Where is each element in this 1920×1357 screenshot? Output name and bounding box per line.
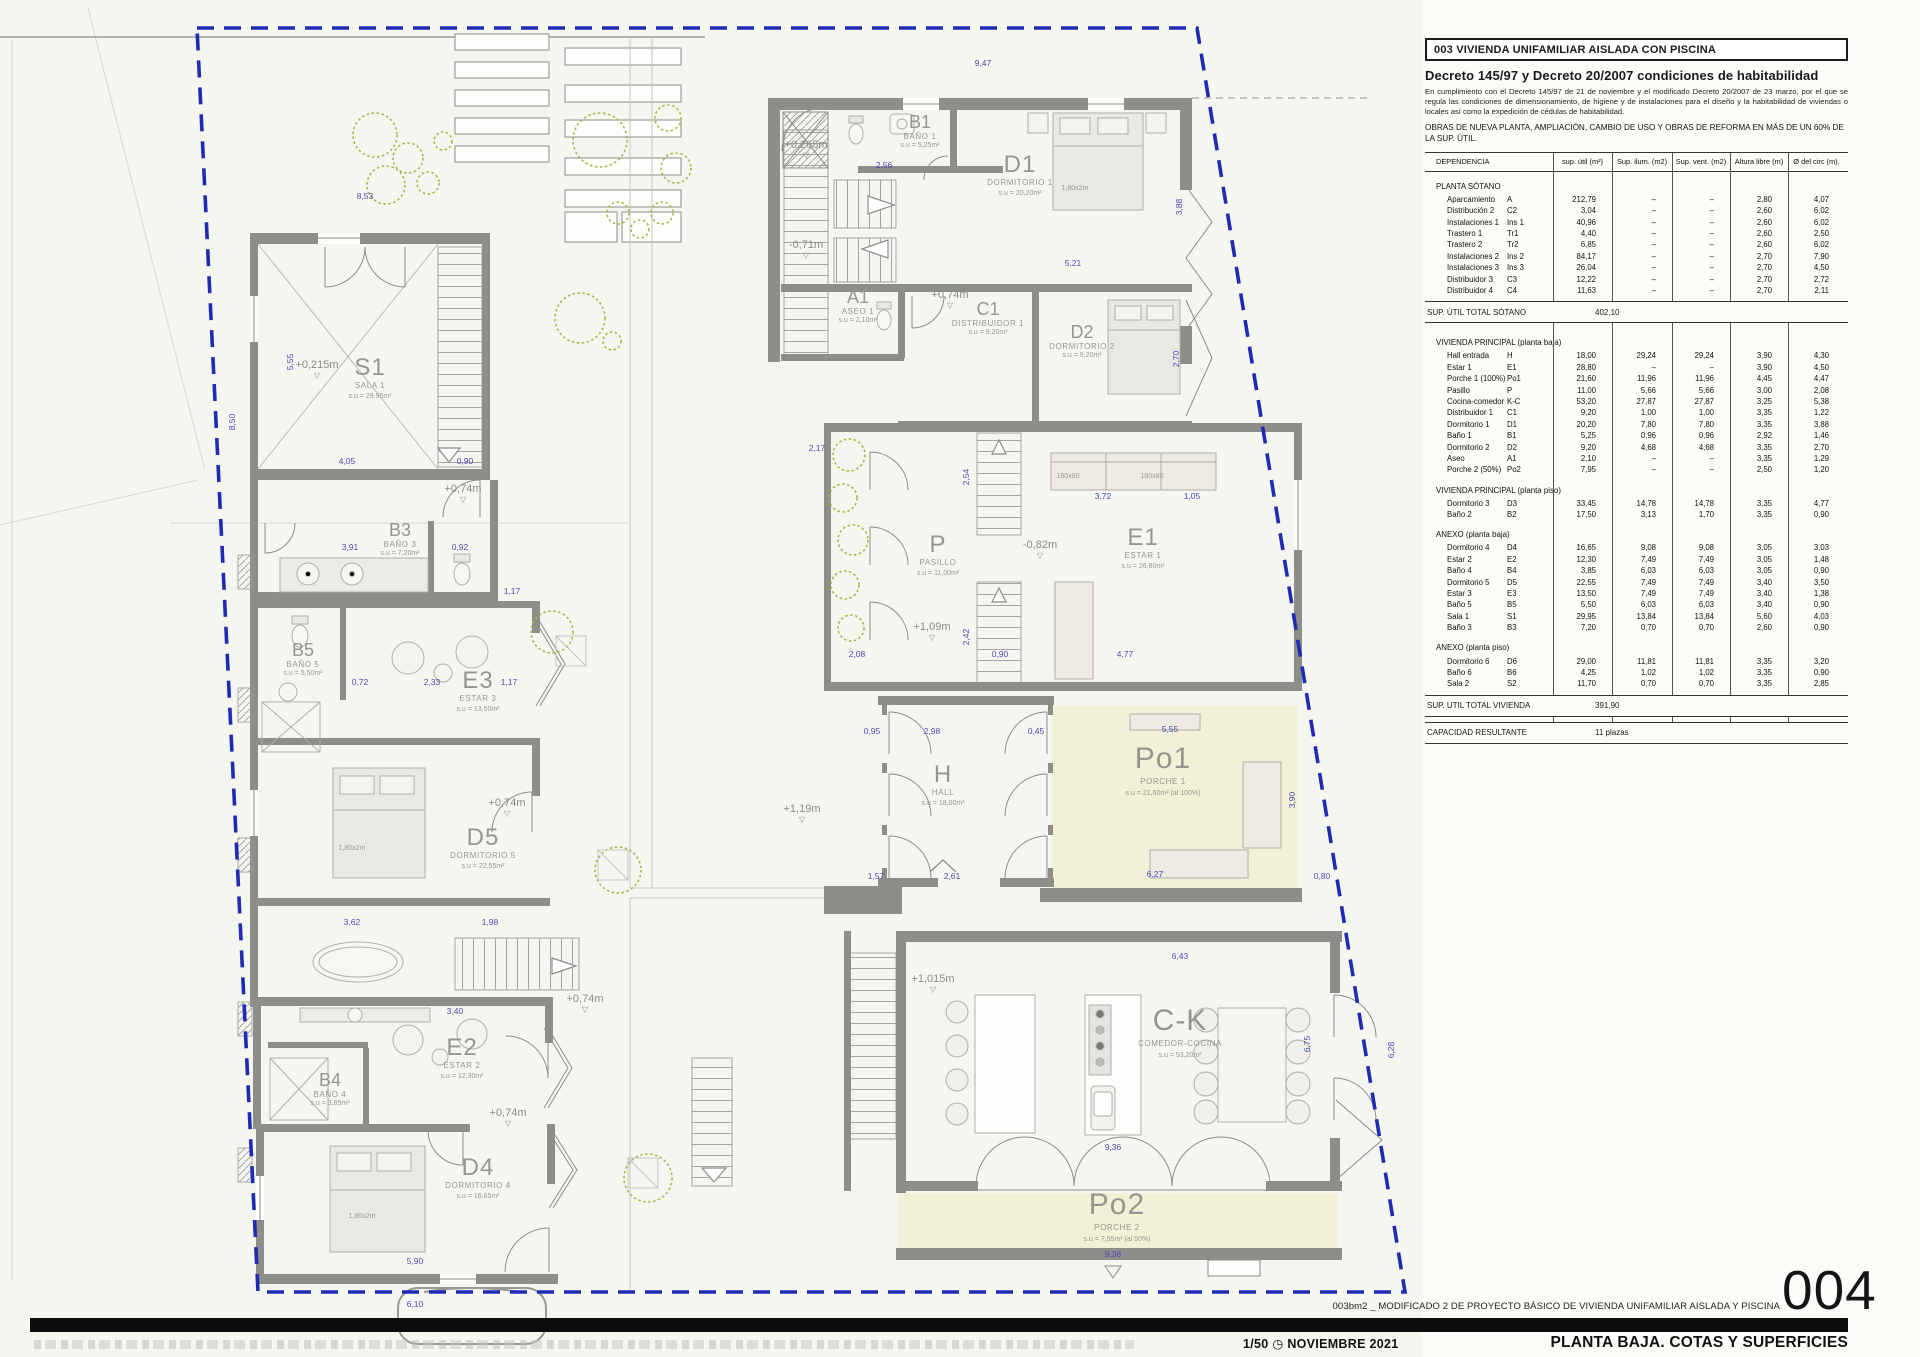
room-name: Baño 2 [1425, 510, 1507, 519]
room-name: Baño 1 [1425, 431, 1507, 440]
cell-value: 0,96 [1612, 431, 1672, 440]
level-marker-icon: ▽ [460, 495, 467, 504]
room-code: Ins 1 [1507, 218, 1553, 227]
cell-value: 4,25 [1553, 668, 1612, 677]
table-row: Sala 2S211,700,700,703,352,85 [1425, 678, 1848, 689]
cell-value: – [1672, 263, 1730, 272]
cell-value: 0,70 [1612, 623, 1672, 632]
room-name-label: DORMITORIO 2 [1049, 342, 1115, 351]
cell-value: 6,03 [1612, 566, 1672, 575]
room-name-label: DORMITORIO 1 [987, 178, 1053, 187]
room-name-label: ESTAR 1 [1125, 551, 1162, 560]
decree-heading: Decreto 145/97 y Decreto 20/2007 condici… [1425, 68, 1848, 83]
dimension-label: 6,43 [1172, 951, 1189, 961]
room-area-label: s.u = 12,30m² [441, 1073, 485, 1080]
cell-value: 1,22 [1788, 408, 1845, 417]
cell-value: – [1672, 363, 1730, 372]
level-marker: +1,015m [911, 973, 954, 985]
cell-value: 2,60 [1730, 218, 1788, 227]
cell-value: 11,96 [1612, 374, 1672, 383]
room-name-label: BAÑO 4 [314, 1090, 347, 1099]
cell-value: 3,25 [1730, 397, 1788, 406]
room-area-label: s.u = 22,55m² [462, 863, 506, 870]
cell-value: 4,40 [1553, 229, 1612, 238]
cell-value: 7,20 [1553, 623, 1612, 632]
cell-value: 2,70 [1788, 443, 1845, 452]
room-code: D4 [1507, 543, 1553, 552]
drawing-sheet: { "panel": { "title": "003 VIVIENDA UNIF… [0, 0, 1920, 1357]
dimension-label: 0,80 [1314, 871, 1331, 881]
cell-value: – [1612, 465, 1672, 474]
cell-value: 5,60 [1730, 612, 1788, 621]
cell-value: 2,92 [1730, 431, 1788, 440]
cell-value: – [1612, 454, 1672, 463]
dimension-label: 0,45 [1028, 726, 1045, 736]
room-name: Distribución 2 [1425, 206, 1507, 215]
cell-value: 3,05 [1730, 555, 1788, 564]
cell-value: 13,84 [1672, 612, 1730, 621]
table-row: Cocina-comedorK-C53,2027,8727,873,255,38 [1425, 396, 1848, 407]
cell-value: – [1672, 206, 1730, 215]
dimension-label: 6,27 [1147, 869, 1164, 879]
total-row: SUP. UTIL TOTAL VIVIENDA391,90 [1425, 695, 1848, 717]
room-code: D2 [1507, 443, 1553, 452]
cell-value: 7,49 [1612, 555, 1672, 564]
cell-value: 2,10 [1553, 454, 1612, 463]
cell-value: 20,20 [1553, 420, 1612, 429]
section-heading: ANEXO (planta baja) [1425, 520, 1848, 542]
cell-value: 3,05 [1730, 566, 1788, 575]
room-code-label: P [929, 531, 946, 558]
dimension-label: 1,05 [1184, 491, 1201, 501]
room-code: D6 [1507, 657, 1553, 666]
cell-value: – [1612, 195, 1672, 204]
level-marker-icon: ▽ [504, 809, 511, 818]
section-heading: PLANTA SÓTANO [1425, 172, 1848, 194]
cell-value: 3,05 [1730, 543, 1788, 552]
room-area-label: s.u = 26,80m² [1122, 563, 1166, 570]
table-row: Baño 5B55,506,036,033,400,90 [1425, 599, 1848, 610]
column-rule [1730, 153, 1731, 744]
column-rule [1553, 153, 1554, 744]
room-code: Ins 2 [1507, 252, 1553, 261]
dimension-label: 4,05 [339, 456, 356, 466]
dimension-label: 3,90 [1287, 791, 1297, 808]
section-heading: ANEXO (planta piso) [1425, 633, 1848, 655]
room-name-label: DORMITORIO 4 [445, 1181, 511, 1190]
table-row: Estar 3E313,507,497,493,401,38 [1425, 588, 1848, 599]
room-area-label: s.u = 2,10m² [838, 317, 878, 324]
table-row: Dormitorio 4D416,659,089,083,053,03 [1425, 542, 1848, 553]
cell-value: 3,85 [1553, 566, 1612, 575]
room-name: Cocina-comedor [1425, 397, 1507, 406]
cell-value: 84,17 [1553, 252, 1612, 261]
cell-value: 0,70 [1612, 679, 1672, 688]
room-name: Sala 2 [1425, 679, 1507, 688]
section-heading: VIVIENDA PRINCIPAL (planta baja) [1425, 328, 1848, 350]
dimension-label: 2,08 [849, 649, 866, 659]
room-name: Trastero 2 [1425, 240, 1507, 249]
cell-value: 6,03 [1672, 566, 1730, 575]
dimension-label: 2,98 [924, 726, 941, 736]
room-area-label: s.u = 3,85m² [310, 1100, 350, 1107]
dimension-label: 5,55 [285, 353, 295, 370]
table-row: AseoA12,10––3,351,29 [1425, 453, 1848, 464]
room-code: S2 [1507, 679, 1553, 688]
level-marker: +0,74m [489, 797, 526, 809]
table-row: Dormitorio 1D120,207,807,803,353,88 [1425, 419, 1848, 430]
column-header: Ø del circ (m). [1788, 157, 1845, 166]
cell-value: 29,24 [1672, 351, 1730, 360]
cell-value: 1,00 [1672, 408, 1730, 417]
cell-value: 27,87 [1672, 397, 1730, 406]
room-name: Dormitorio 1 [1425, 420, 1507, 429]
room-code: D1 [1507, 420, 1553, 429]
titleblock-bar [30, 1318, 1848, 1332]
cell-value: 3,35 [1730, 657, 1788, 666]
column-header: sup. útil (m²) [1553, 157, 1612, 166]
room-area-label: s.u = 7,20m² [380, 550, 420, 557]
cell-value: 6,03 [1672, 600, 1730, 609]
cell-value: 2,72 [1788, 275, 1845, 284]
room-name: Dormitorio 3 [1425, 499, 1507, 508]
section-heading: VIVIENDA PRINCIPAL (planta piso) [1425, 476, 1848, 498]
dimension-label: 1,80x2m [1062, 185, 1089, 192]
cell-value: 3,40 [1730, 589, 1788, 598]
cell-value: 5,66 [1612, 386, 1672, 395]
table-row: Baño 3B37,200,700,702,600,90 [1425, 622, 1848, 633]
room-code: A1 [1507, 454, 1553, 463]
cell-value: 4,68 [1612, 443, 1672, 452]
room-code: B1 [1507, 431, 1553, 440]
cell-value: 1,20 [1788, 465, 1845, 474]
room-name: Dormitorio 2 [1425, 443, 1507, 452]
level-marker-icon: ▽ [582, 1005, 589, 1014]
table-row: Baño 6B64,251,021,023,350,90 [1425, 667, 1848, 678]
cell-value: 29,00 [1553, 657, 1612, 666]
cell-value: 9,08 [1672, 543, 1730, 552]
table-row: Porche 1 (100%)Po121,6011,9611,964,454,4… [1425, 373, 1848, 384]
dimension-label: 2,61 [944, 871, 961, 881]
cell-value: – [1612, 229, 1672, 238]
surface-table: DEPENDENCIAsup. útil (m²)Sup. ilum. (m2)… [1425, 152, 1848, 744]
level-marker-icon: ▽ [929, 633, 936, 642]
room-name: Baño 3 [1425, 623, 1507, 632]
level-marker: +1,19m [784, 803, 821, 815]
cell-value: 4,45 [1730, 374, 1788, 383]
total-label: SUP. UTIL TOTAL VIVIENDA [1425, 701, 1577, 710]
cell-value: 3,40 [1730, 600, 1788, 609]
cell-value: 4,30 [1788, 351, 1845, 360]
cell-value: 3,35 [1730, 499, 1788, 508]
room-code-label: C1 [976, 299, 999, 319]
cell-value: 3,35 [1730, 443, 1788, 452]
habitability-panel: 003 VIVIENDA UNIFAMILIAR AISLADA CON PIS… [1425, 38, 1848, 749]
cell-value: 0,90 [1788, 668, 1845, 677]
cell-value: 212,79 [1553, 195, 1612, 204]
dimension-label: 1,17 [501, 677, 518, 687]
dimension-label: 5,90 [407, 1256, 424, 1266]
cell-value: 4,47 [1788, 374, 1845, 383]
room-name-label: PORCHE 1 [1140, 777, 1186, 786]
cell-value: 3,50 [1788, 578, 1845, 587]
cell-value: 11,96 [1672, 374, 1730, 383]
cell-value: 13,84 [1612, 612, 1672, 621]
dimension-label: 180x80 [1141, 473, 1164, 480]
room-area-label: s.u = 21,60m² (al 100%) [1126, 790, 1201, 797]
sheet-title: PLANTA BAJA. COTAS Y SUPERFICIES [1500, 1334, 1848, 1352]
room-name-label: BAÑO 5 [287, 660, 320, 669]
cell-value: 21,60 [1553, 374, 1612, 383]
room-name: Instalaciones 3 [1425, 263, 1507, 272]
level-marker-icon: ▽ [314, 371, 321, 380]
room-code: B3 [1507, 623, 1553, 632]
table-row: Instalaciones 3Ins 326,04––2,704,50 [1425, 262, 1848, 273]
room-code: Tr2 [1507, 240, 1553, 249]
table-row: Distribuidor 3C312,22––2,702,72 [1425, 273, 1848, 284]
clock-icon: ◷ [1272, 1337, 1283, 1351]
level-marker-icon: ▽ [930, 985, 937, 994]
room-name: Aparcamiento [1425, 195, 1507, 204]
dimension-label: 9,47 [975, 58, 992, 68]
cell-value: 2,60 [1730, 240, 1788, 249]
room-code: B4 [1507, 566, 1553, 575]
cell-value: 14,78 [1672, 499, 1730, 508]
cell-value: 4,03 [1788, 612, 1845, 621]
cell-value: – [1612, 206, 1672, 215]
cell-value: 40,96 [1553, 218, 1612, 227]
table-row: Instalaciones 2Ins 284,17––2,707,90 [1425, 251, 1848, 262]
dimension-label: 6,28 [1386, 1041, 1396, 1058]
dimension-label: 2,17 [809, 443, 826, 453]
cell-value: 2,70 [1730, 263, 1788, 272]
room-code: Tr1 [1507, 229, 1553, 238]
room-name: Pasillo [1425, 386, 1507, 395]
cell-value: 12,30 [1553, 555, 1612, 564]
table-row: Baño 1B15,250,960,962,921,46 [1425, 430, 1848, 441]
dimension-label: 3,62 [344, 917, 361, 927]
dimension-label: 0,92 [452, 542, 469, 552]
room-area-label: s.u = 16,65m² [457, 1193, 501, 1200]
project-name: 003bm2 _ MODIFICADO 2 DE PROYECTO BÁSICO… [1150, 1301, 1780, 1312]
cell-value: 2,50 [1730, 465, 1788, 474]
cell-value: 14,78 [1612, 499, 1672, 508]
cell-value: 7,80 [1672, 420, 1730, 429]
cell-value: – [1672, 195, 1730, 204]
room-code-label: B5 [292, 640, 314, 660]
cell-value: 11,81 [1612, 657, 1672, 666]
room-area-label: s.u = 11,00m² [917, 570, 960, 577]
room-code-label: D1 [1004, 151, 1037, 178]
dimension-label: 1,80x2m [339, 845, 366, 852]
dimension-label: 0,90 [457, 456, 474, 466]
room-area-label: s.u = 18,00m² [922, 800, 966, 807]
cell-value: 6,02 [1788, 240, 1845, 249]
room-code: C3 [1507, 275, 1553, 284]
dimension-label: 0,90 [992, 649, 1009, 659]
cell-value: 4,07 [1788, 195, 1845, 204]
cell-value: 3,40 [1730, 578, 1788, 587]
room-name-label: PASILLO [920, 558, 957, 567]
room-area-label: s.u = 9,20m² [1062, 352, 1102, 359]
room-code: A [1507, 195, 1553, 204]
room-name: Dormitorio 5 [1425, 578, 1507, 587]
room-name-label: ESTAR 3 [460, 694, 497, 703]
cell-value: 13,50 [1553, 589, 1612, 598]
room-code-label: A1 [847, 287, 869, 307]
cell-value: 1,02 [1672, 668, 1730, 677]
dimension-label: 180x80 [1057, 473, 1080, 480]
room-code-label: Po1 [1135, 742, 1191, 775]
dimension-label: 5,21 [1065, 258, 1082, 268]
cell-value: 3,90 [1730, 351, 1788, 360]
cell-value: 6,85 [1553, 240, 1612, 249]
cell-value: 7,49 [1612, 589, 1672, 598]
cell-value: – [1672, 454, 1730, 463]
room-code: H [1507, 351, 1553, 360]
cell-value: 1,29 [1788, 454, 1845, 463]
room-name: Trastero 1 [1425, 229, 1507, 238]
room-name: Distribuidor 4 [1425, 286, 1507, 295]
cell-value: 3,88 [1788, 420, 1845, 429]
room-code: B6 [1507, 668, 1553, 677]
cell-value: 0,70 [1672, 679, 1730, 688]
cell-value: 16,65 [1553, 543, 1612, 552]
dimension-label: 3,40 [447, 1006, 464, 1016]
dimension-label: 4,77 [1117, 649, 1134, 659]
table-row: Trastero 2Tr26,85––2,606,02 [1425, 239, 1848, 250]
room-name: Distribuidor 1 [1425, 408, 1507, 417]
cell-value: 1,38 [1788, 589, 1845, 598]
room-name: Estar 3 [1425, 589, 1507, 598]
room-name: Baño 6 [1425, 668, 1507, 677]
cell-value: 2,60 [1730, 623, 1788, 632]
cell-value: 0,90 [1788, 600, 1845, 609]
cell-value: 29,95 [1553, 612, 1612, 621]
room-name-label: BAÑO 3 [384, 540, 417, 549]
room-area-label: s.u = 53,20m² [1159, 1052, 1203, 1059]
table-row: Baño 2B217,503,131,703,350,90 [1425, 509, 1848, 520]
cell-value: 3,03 [1788, 543, 1845, 552]
total-label: SUP. ÚTIL TOTAL SÓTANO [1425, 308, 1577, 317]
cell-value: – [1612, 252, 1672, 261]
room-area-label: s.u = 13,50m² [457, 706, 501, 713]
dimension-label: 3,91 [342, 542, 359, 552]
dimension-label: 5,55 [1162, 724, 1179, 734]
room-name: Instalaciones 2 [1425, 252, 1507, 261]
cell-value: 9,08 [1612, 543, 1672, 552]
dimension-label: 1,98 [482, 917, 499, 927]
table-row: Sala 1S129,9513,8413,845,604,03 [1425, 611, 1848, 622]
room-name: Baño 4 [1425, 566, 1507, 575]
room-name-label: ESTAR 2 [444, 1061, 481, 1070]
cell-value: 9,20 [1553, 443, 1612, 452]
cell-value: 3,35 [1730, 679, 1788, 688]
room-area-label: s.u = 20,20m² [999, 190, 1043, 197]
table-row: PasilloP11,005,665,663,002,08 [1425, 384, 1848, 395]
porch-step [1208, 1260, 1260, 1276]
cell-value: 2,85 [1788, 679, 1845, 688]
level-marker: +0,74m [932, 289, 969, 301]
cell-value: 3,35 [1730, 454, 1788, 463]
cell-value: 7,49 [1612, 578, 1672, 587]
room-code: C4 [1507, 286, 1553, 295]
cell-value: 4,77 [1788, 499, 1845, 508]
cell-value: – [1672, 252, 1730, 261]
room-name: Dormitorio 4 [1425, 543, 1507, 552]
cell-value: 7,90 [1788, 252, 1845, 261]
column-header: Sup. vent. (m2) [1672, 157, 1730, 166]
dimension-label: 2,70 [1171, 350, 1181, 367]
level-marker: +0,74m [445, 483, 482, 495]
room-name: Dormitorio 6 [1425, 657, 1507, 666]
cell-value: 3,13 [1612, 510, 1672, 519]
room-area-label: s.u = 7,95m² (al 50%) [1083, 1236, 1150, 1243]
cell-value: 2,60 [1730, 206, 1788, 215]
cell-value: 7,95 [1553, 465, 1612, 474]
level-marker: +0,74m [567, 993, 604, 1005]
cell-value: 12,22 [1553, 275, 1612, 284]
cell-value: – [1612, 263, 1672, 272]
room-name: Porche 1 (100%) [1425, 374, 1507, 383]
cell-value: 2,50 [1788, 229, 1845, 238]
room-code: C1 [1507, 408, 1553, 417]
total-value: 402,10 [1577, 308, 1619, 317]
cell-value: 0,90 [1788, 510, 1845, 519]
dimension-label: 0,72 [352, 677, 369, 687]
dimension-label: 3,88 [1174, 198, 1184, 215]
cell-value: 3,04 [1553, 206, 1612, 215]
cell-value: – [1612, 286, 1672, 295]
room-name: Distribuidor 3 [1425, 275, 1507, 284]
level-marker: +1,09m [914, 621, 951, 633]
cell-value: 4,50 [1788, 363, 1845, 372]
cell-value: 1,46 [1788, 431, 1845, 440]
cell-value: 1,00 [1612, 408, 1672, 417]
room-name-label: DORMITORIO 5 [450, 851, 516, 860]
cell-value: 2,80 [1730, 195, 1788, 204]
level-marker-icon: ▽ [803, 151, 810, 160]
cell-value: 1,48 [1788, 555, 1845, 564]
dimension-label: 2,33 [424, 677, 441, 687]
dimension-label: 2,54 [961, 468, 971, 485]
cell-value: 1,02 [1612, 668, 1672, 677]
level-marker-icon: ▽ [505, 1119, 512, 1128]
cell-value: 5,66 [1672, 386, 1730, 395]
room-code: E3 [1507, 589, 1553, 598]
cell-value: 18,00 [1553, 351, 1612, 360]
table-row: Estar 1E128,80––3,904,50 [1425, 362, 1848, 373]
room-name: Baño 5 [1425, 600, 1507, 609]
table-row: Distribución 2C23,04––2,606,02 [1425, 205, 1848, 216]
dimension-label: 9,36 [1105, 1142, 1122, 1152]
cell-value: – [1612, 363, 1672, 372]
room-code: S1 [1507, 612, 1553, 621]
dimension-label: 3,72 [1095, 491, 1112, 501]
room-code-label: E2 [446, 1034, 477, 1061]
room-name: Porche 2 (50%) [1425, 465, 1507, 474]
cell-value: 0,90 [1788, 623, 1845, 632]
cell-value: 17,50 [1553, 510, 1612, 519]
cell-value: 2,70 [1730, 252, 1788, 261]
room-area-label: s.u = 29,95m² [349, 393, 393, 400]
cell-value: 11,00 [1553, 386, 1612, 395]
room-name: Estar 1 [1425, 363, 1507, 372]
room-code: E1 [1507, 363, 1553, 372]
cell-value: 6,02 [1788, 206, 1845, 215]
date-value: NOVIEMBRE 2021 [1287, 1337, 1398, 1351]
cell-value: 5,25 [1553, 431, 1612, 440]
